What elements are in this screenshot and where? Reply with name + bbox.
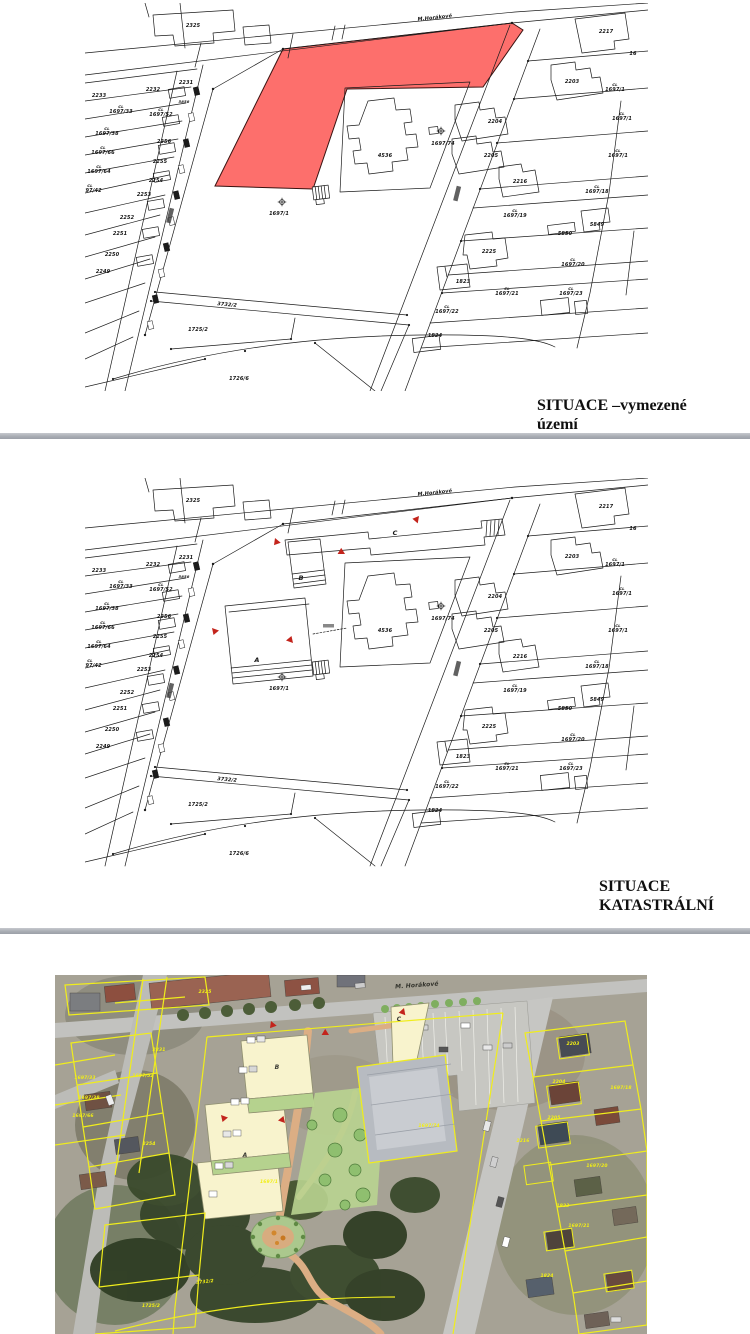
map-label: 1697/20 [561,262,585,268]
map2-labels: M.Horákové23252217162233223222315858CL16… [85,487,637,857]
existing-building [357,1055,457,1163]
map-label: 2254 [149,178,164,184]
map-label: 1697/64 [87,644,111,650]
map-label: 2325 [199,989,212,995]
map-label: 2253 [137,667,152,673]
figure-aerial-site-plan: M. Horákové232522311697/331697/521697/38… [55,975,647,1334]
map-label: 1697/74 [431,616,455,622]
map-label: 2203 [565,79,580,85]
map-label: 1725/2 [142,1303,160,1309]
map-label: M.Horákové [417,487,453,498]
map-label: 1697/20 [561,737,585,743]
section-divider [0,433,750,439]
dimension-microtext [323,624,334,628]
map-label: 1697/38 [95,606,119,612]
map-label: 2203 [567,1041,580,1047]
map-label: 1697/21 [495,766,518,772]
map-label: 5850 [558,706,573,712]
map-label: 2217 [599,504,614,510]
map-label: 1697/38 [78,1095,99,1101]
map-label: 1697/21 [495,291,518,297]
map-label: M.Horákové [417,12,453,23]
map-label: 2216 [513,654,528,660]
map-label: 2225 [482,249,497,255]
entrance-arrow [336,547,345,556]
figure-situace-vymezene-uzemi: M.Horákové23252217162233223222315858CL16… [85,3,648,391]
map-label: 2203 [565,554,580,560]
map-label: 1697/23 [559,291,583,297]
map-label: 5850 [558,231,573,237]
map-label: 1697/19 [503,688,527,694]
map-label: 2233 [92,568,107,574]
playground-circle [251,1216,305,1258]
map-label: 2204 [553,1079,566,1085]
map-label: 2325 [186,498,201,504]
map-label: 2255 [153,634,168,640]
map-label: 2249 [96,269,111,275]
map-label: 2217 [599,29,614,35]
map-label: 1697/21 [568,1223,589,1229]
map-label: 2233 [92,93,107,99]
map-label: 4536 [378,628,393,634]
map-label: 2254 [143,1141,156,1147]
map-label: 1824 [428,808,443,814]
map-label: 1697/38 [95,131,119,137]
map-label: 2205 [484,153,499,159]
map-label: 1697/19 [503,213,527,219]
map-label: 2205 [484,628,499,634]
figure-situace-katastralni: M.Horákové23252217162233223222315858CL16… [85,478,648,868]
map-label: 1697/42 [85,188,102,194]
map-label: 4536 [378,153,393,159]
map-label: 1697/74 [431,141,455,147]
map-label: 16 [629,526,637,532]
map-label: 16 [629,51,637,57]
map-label: 5858 [179,574,190,579]
map-label: 1697/1 [605,87,625,93]
figure1-caption: SITUACE –vymezené území [537,396,727,434]
map-label: 1697/1 [608,153,628,159]
map-label: 2232 [146,87,161,93]
map-label: 2254 [149,653,164,659]
map-label: 1697/20 [586,1163,607,1169]
map-label: 2256 [157,614,172,620]
entrance-arrow [286,636,293,643]
map-label: 2256 [157,139,172,145]
map-label: 1697/66 [91,150,115,156]
map-label: 2252 [120,215,135,221]
map-label: 1697/1 [612,591,632,597]
map-label: 5849 [590,697,605,703]
map-label: 2251 [113,231,127,237]
map-label: 1697/52 [149,112,173,118]
section-divider [0,928,750,934]
map-label: 2251 [113,706,127,712]
map-label: C [397,1016,402,1023]
map-label: 2225 [482,724,497,730]
map-label: A [253,656,259,664]
map-label: 1697/18 [585,664,609,670]
map-label: 2205 [548,1115,561,1121]
map-label: 1697/1 [612,116,632,122]
map-label: 1697/52 [132,1073,153,1079]
map-label: 1823 [456,754,471,760]
map-label: C [393,529,398,537]
map-label: 1697/33 [109,584,133,590]
map-label: 1697/1 [260,1179,278,1185]
map-label: 2216 [513,179,528,185]
map-label: 1697/1 [605,562,625,568]
map-label: 5849 [590,222,605,228]
map-label: 1697/33 [109,109,133,115]
map-label: 1697/1 [608,628,628,634]
map-label: 2255 [153,159,168,165]
entrance-arrow [212,628,219,635]
map-label: 1697/22 [435,309,459,315]
map-label: 2253 [137,192,152,198]
map-label: 2231 [179,80,193,86]
map-label: 5858 [179,99,190,104]
map-label: 1697/23 [559,766,583,772]
map-label: 1697/66 [91,625,115,631]
map-label: 2204 [488,119,503,125]
map-label: 2231 [179,555,193,561]
map-label: 1823 [557,1203,570,1209]
map-label: 1725/2 [188,327,208,333]
map-label: 1697/52 [149,587,173,593]
document-page: M.Horákové23252217162233223222315858CL16… [0,0,750,1334]
map-label: 2216 [517,1138,530,1144]
map-label: 1697/64 [87,169,111,175]
map-label: 1823 [456,279,471,285]
map-label: 2204 [488,594,503,600]
entrance-arrow [273,538,282,547]
map-label: 2249 [96,744,111,750]
map-label: 1697/18 [610,1085,631,1091]
map-label: 2250 [105,727,120,733]
map-label: 2232 [146,562,161,568]
map-label: 1697/1 [269,211,289,217]
map-label: 1725/2 [188,802,208,808]
map-label: 1824 [541,1273,554,1279]
map-label: 1697/1 [269,686,289,692]
map-label: 1697/22 [435,784,459,790]
map-label: 1697/66 [72,1113,93,1119]
map-label: 1697/42 [85,663,102,669]
map-label: 1726/6 [229,851,249,857]
map-label: A [242,1152,248,1159]
map-label: 2250 [105,252,120,258]
highlighted-area [215,23,523,189]
map-label: 2325 [186,23,201,29]
map-label: 1697/33 [74,1075,95,1081]
map-label: 1824 [428,333,443,339]
map-label: B [275,1064,280,1071]
map-label: 1726/6 [229,376,249,382]
map-label: B [298,574,303,582]
map-label: 2252 [120,690,135,696]
map-label: 1697/74 [418,1123,439,1129]
map-label: 1697/18 [585,189,609,195]
entrance-arrow [412,516,420,524]
figure2-caption: SITUACE KATASTRÁLNÍ [599,877,749,915]
map-label: 2231 [153,1047,166,1053]
